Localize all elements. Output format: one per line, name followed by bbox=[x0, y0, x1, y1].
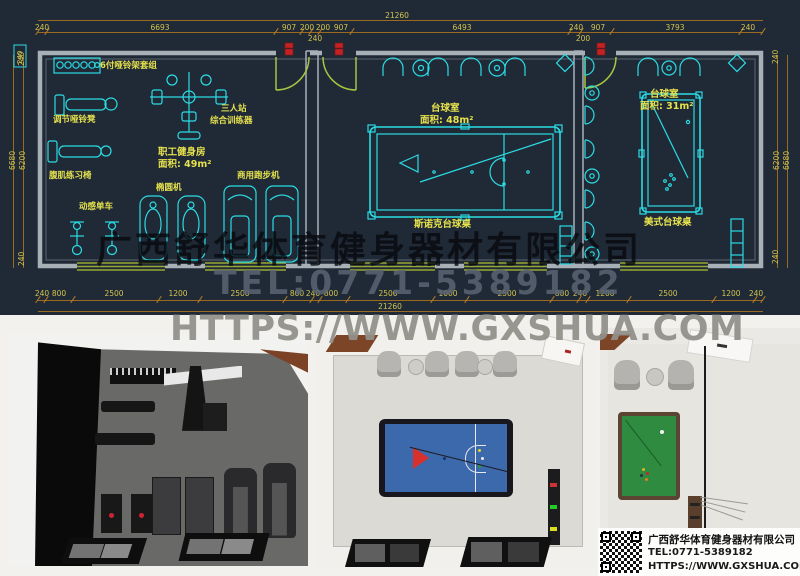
gym-spinbike-silhouette bbox=[101, 494, 122, 534]
floor-window bbox=[460, 537, 552, 567]
gym-floor-mat bbox=[179, 533, 270, 561]
snooker-cue-rack-3d bbox=[548, 469, 560, 545]
pool-chair bbox=[614, 360, 640, 390]
gym-machine-silhouette bbox=[152, 477, 181, 535]
gym-title: 职工健身房 bbox=[158, 148, 206, 158]
panel-mark bbox=[565, 349, 571, 353]
ball bbox=[646, 472, 649, 475]
gym-trainer-seat bbox=[203, 403, 227, 431]
label-ab-chair: 腹肌练习椅 bbox=[49, 172, 92, 181]
gym-bench-silhouette bbox=[95, 433, 155, 445]
snooker-table-3d bbox=[379, 419, 513, 497]
pool-chairs-row bbox=[638, 58, 700, 76]
label-treadmill: 商用跑步机 bbox=[237, 172, 280, 181]
adjustable-bench-drawing bbox=[55, 95, 117, 115]
ball bbox=[642, 468, 645, 471]
pool-chair bbox=[668, 360, 694, 390]
render-snooker-3d bbox=[315, 329, 596, 569]
label-trainer-1: 三人站 bbox=[221, 105, 247, 114]
dumbbell-rack-drawing bbox=[54, 58, 100, 73]
gym-spinbike-silhouette bbox=[131, 494, 152, 534]
pool-side-table bbox=[646, 368, 664, 386]
pool-area: 面积: 31m² bbox=[640, 102, 693, 112]
snooker-chairs-row bbox=[383, 58, 525, 76]
watermark-url: HTTPS://WWW.GXSHUA.COM bbox=[170, 309, 744, 349]
snooker-side-table bbox=[477, 359, 493, 375]
floor-window-pane bbox=[508, 542, 539, 561]
floor-window-pane bbox=[355, 544, 384, 562]
floor-window bbox=[345, 539, 431, 567]
label-dumbbell-rack: 6付哑铃架套组 bbox=[100, 62, 157, 71]
label-bench: 调节哑铃凳 bbox=[53, 116, 96, 125]
label-elliptical: 椭圆机 bbox=[156, 184, 182, 193]
floor-window-pane bbox=[471, 542, 502, 561]
ball bbox=[645, 478, 648, 481]
three-person-trainer-drawing bbox=[150, 72, 228, 139]
floor-window-pane bbox=[390, 544, 419, 562]
gym-area: 面积: 49m² bbox=[158, 160, 211, 170]
pool-table-label: 美式台球桌 bbox=[644, 218, 692, 228]
info-company: 广西舒华体育健身器材有限公司 bbox=[648, 532, 795, 547]
snooker-cloth bbox=[385, 424, 507, 492]
gym-machine-silhouette bbox=[185, 477, 214, 535]
info-tel: TEL:0771-5389182 bbox=[648, 547, 753, 558]
gym-treadmill-silhouette bbox=[224, 468, 257, 538]
render-gym-3d bbox=[8, 333, 308, 566]
gym-bench-silhouette bbox=[101, 401, 155, 413]
snooker-chair bbox=[493, 351, 517, 377]
corner-diamond bbox=[729, 55, 746, 72]
render-pool-3d bbox=[600, 328, 800, 528]
wall-thickness-dim: 240 bbox=[17, 51, 24, 64]
label-trainer-2: 综合训练器 bbox=[210, 117, 253, 126]
ball-yellow bbox=[478, 449, 481, 452]
corner-diamond bbox=[557, 55, 574, 72]
gym-floor-mat bbox=[61, 538, 147, 564]
info-url: HTTPS://WWW.GXSHUA.COM bbox=[648, 561, 800, 572]
snooker-title: 台球室 bbox=[431, 104, 460, 114]
snooker-side-table bbox=[408, 359, 424, 375]
snooker-chair bbox=[425, 351, 449, 377]
watermark-tel: TEL:0771-5389182 bbox=[214, 263, 624, 302]
snooker-chair bbox=[455, 351, 479, 377]
ab-chair-drawing bbox=[48, 141, 111, 162]
ball-white bbox=[481, 457, 484, 460]
cue-ball bbox=[660, 430, 664, 434]
ball-blue bbox=[443, 457, 446, 460]
ball bbox=[640, 474, 643, 477]
info-panel: 广西舒华体育健身器材有限公司 TEL:0771-5389182 HTTPS://… bbox=[598, 528, 800, 576]
pool-table-3d bbox=[618, 412, 680, 500]
gym-treadmill-silhouette bbox=[263, 463, 296, 538]
snooker-table-drawing bbox=[368, 124, 562, 220]
snooker-chair bbox=[377, 351, 401, 377]
snooker-area: 面积: 48m² bbox=[420, 116, 473, 126]
qr-code bbox=[600, 531, 642, 573]
pool-title: 台球室 bbox=[650, 90, 679, 100]
label-spin-bike: 动感单车 bbox=[79, 203, 113, 212]
